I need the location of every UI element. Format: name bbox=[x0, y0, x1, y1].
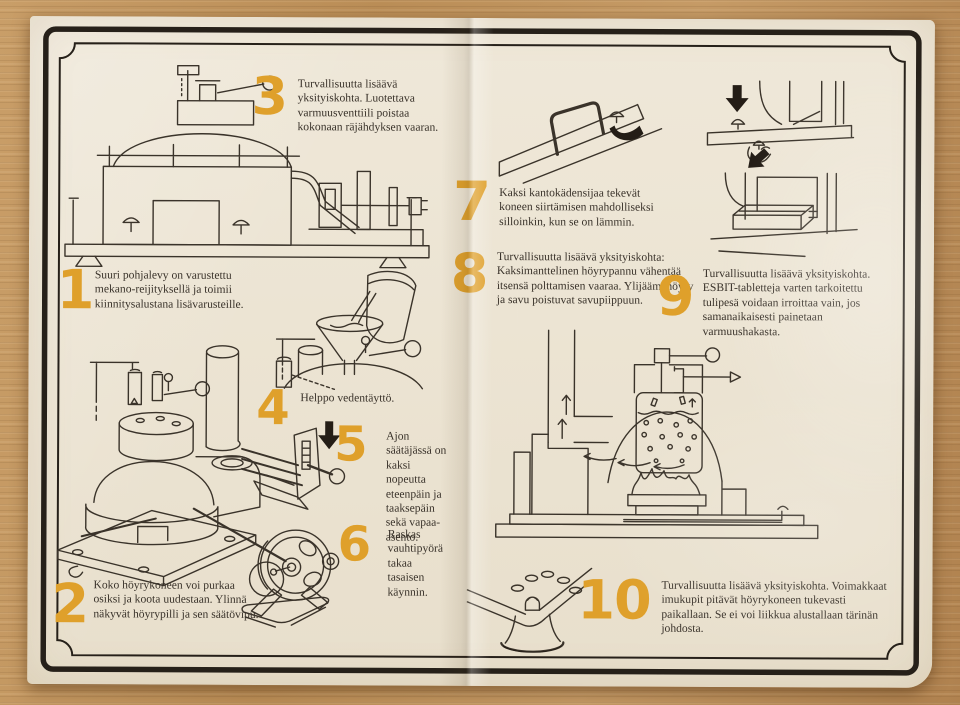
step-4-text: Helppo vedentäyttö. bbox=[300, 391, 440, 406]
step-10-text: Turvallisuutta lisäävä yksityiskohta. Vo… bbox=[661, 579, 895, 638]
step-number: 5 bbox=[334, 416, 367, 472]
step-8: 8 bbox=[451, 250, 488, 298]
step-number: 1 bbox=[57, 258, 94, 321]
step-number: 3 bbox=[252, 67, 287, 127]
step-6-text: Raskas vauhtipyörä takaa tasaisen käynni… bbox=[387, 528, 449, 600]
instruction-sheet: 3 Turvallisuutta lisäävä yksityiskohta. … bbox=[27, 16, 935, 688]
illustration-speed-lever bbox=[240, 419, 348, 517]
step-number: 8 bbox=[451, 242, 488, 305]
illustration-water-filling-funnel bbox=[272, 263, 437, 392]
wooden-table: { "colors": { "number_accent": "#dfa02b"… bbox=[0, 0, 960, 705]
step-7: 7 bbox=[453, 178, 490, 226]
step-9: 9 bbox=[657, 273, 694, 321]
step-number: 6 bbox=[338, 516, 371, 572]
step-2: 2 bbox=[51, 580, 88, 628]
illustration-boiler-cross-section bbox=[484, 330, 835, 576]
step-3: 3 bbox=[252, 75, 287, 121]
step-number: 10 bbox=[577, 568, 650, 631]
illustration-esbit-burner-tray bbox=[709, 171, 863, 264]
step-1: 1 bbox=[57, 266, 94, 314]
step-7-text: Kaksi kantokädensijaa tekevät koneen sii… bbox=[499, 186, 669, 230]
step-2-text: Koko höyrykoneen voi purkaa osiksi ja ko… bbox=[93, 578, 263, 622]
step-9-text: Turvallisuutta lisäävä yksityiskohta. ES… bbox=[703, 267, 887, 340]
step-number: 2 bbox=[51, 572, 88, 635]
down-arrow-icon bbox=[726, 85, 749, 112]
step-10: 10 bbox=[577, 576, 650, 624]
step-number: 9 bbox=[657, 265, 694, 328]
illustration-safety-catch-press bbox=[701, 79, 865, 180]
step-6: 6 bbox=[338, 523, 371, 565]
step-3-text: Turvallisuutta lisäävä yksityiskohta. Lu… bbox=[297, 77, 449, 135]
step-number: 7 bbox=[453, 170, 490, 233]
illustration-carrying-handle bbox=[497, 88, 665, 187]
step-1-text: Suuri pohjalevy on varustettu mekano-rei… bbox=[95, 268, 249, 312]
step-5: 5 bbox=[334, 423, 367, 465]
